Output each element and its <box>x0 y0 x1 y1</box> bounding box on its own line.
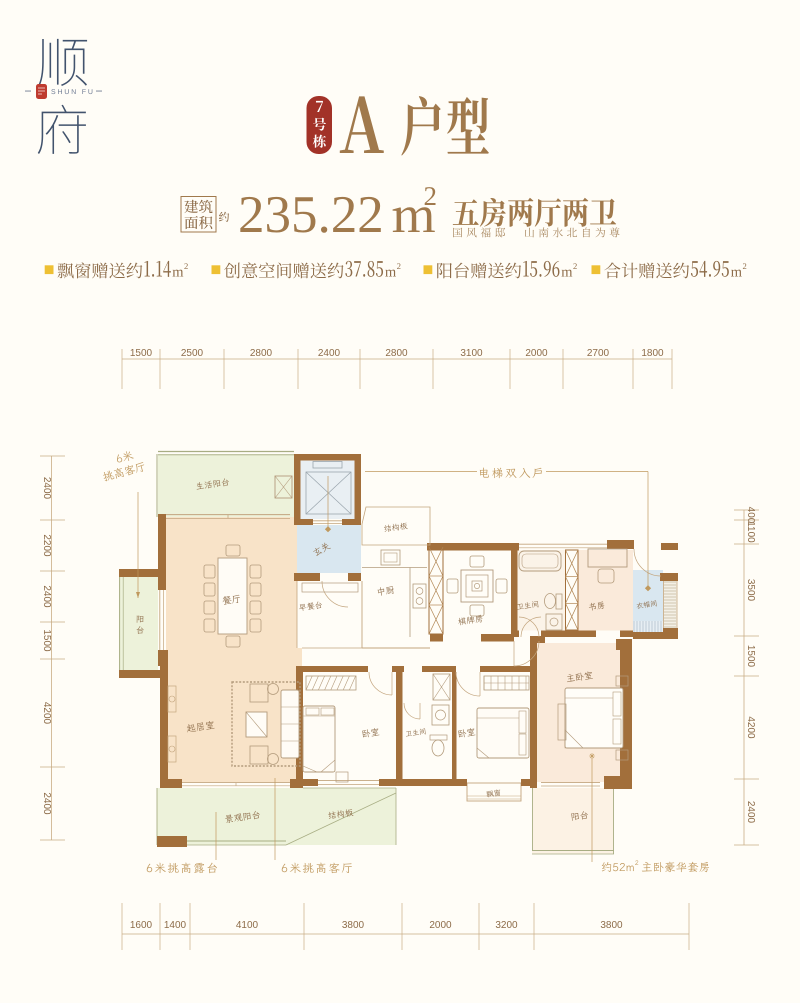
svg-text:2800: 2800 <box>385 348 408 359</box>
svg-text:2400: 2400 <box>41 585 52 608</box>
svg-text:4100: 4100 <box>236 920 259 931</box>
svg-text:3800: 3800 <box>342 920 365 931</box>
svg-text:4200: 4200 <box>745 716 756 739</box>
svg-text:2400: 2400 <box>41 477 52 500</box>
svg-text:3800: 3800 <box>600 920 623 931</box>
svg-text:3200: 3200 <box>495 920 518 931</box>
svg-text:2700: 2700 <box>587 348 610 359</box>
svg-text:3500: 3500 <box>745 579 756 602</box>
svg-text:3100: 3100 <box>460 348 483 359</box>
svg-text:1500: 1500 <box>41 629 52 652</box>
svg-text:1400: 1400 <box>164 920 187 931</box>
svg-text:2000: 2000 <box>429 920 452 931</box>
svg-text:1600: 1600 <box>130 920 153 931</box>
svg-text:2000: 2000 <box>525 348 548 359</box>
svg-text:1100: 1100 <box>745 521 756 543</box>
svg-text:1500: 1500 <box>130 348 153 359</box>
svg-text:2800: 2800 <box>250 348 273 359</box>
svg-text:2400: 2400 <box>318 348 341 359</box>
svg-text:4200: 4200 <box>41 702 52 725</box>
svg-text:1500: 1500 <box>745 645 756 668</box>
svg-text:2400: 2400 <box>41 792 52 815</box>
svg-text:2400: 2400 <box>745 801 756 824</box>
svg-text:2200: 2200 <box>41 534 52 557</box>
svg-text:1800: 1800 <box>641 348 664 359</box>
svg-text:2500: 2500 <box>181 348 204 359</box>
